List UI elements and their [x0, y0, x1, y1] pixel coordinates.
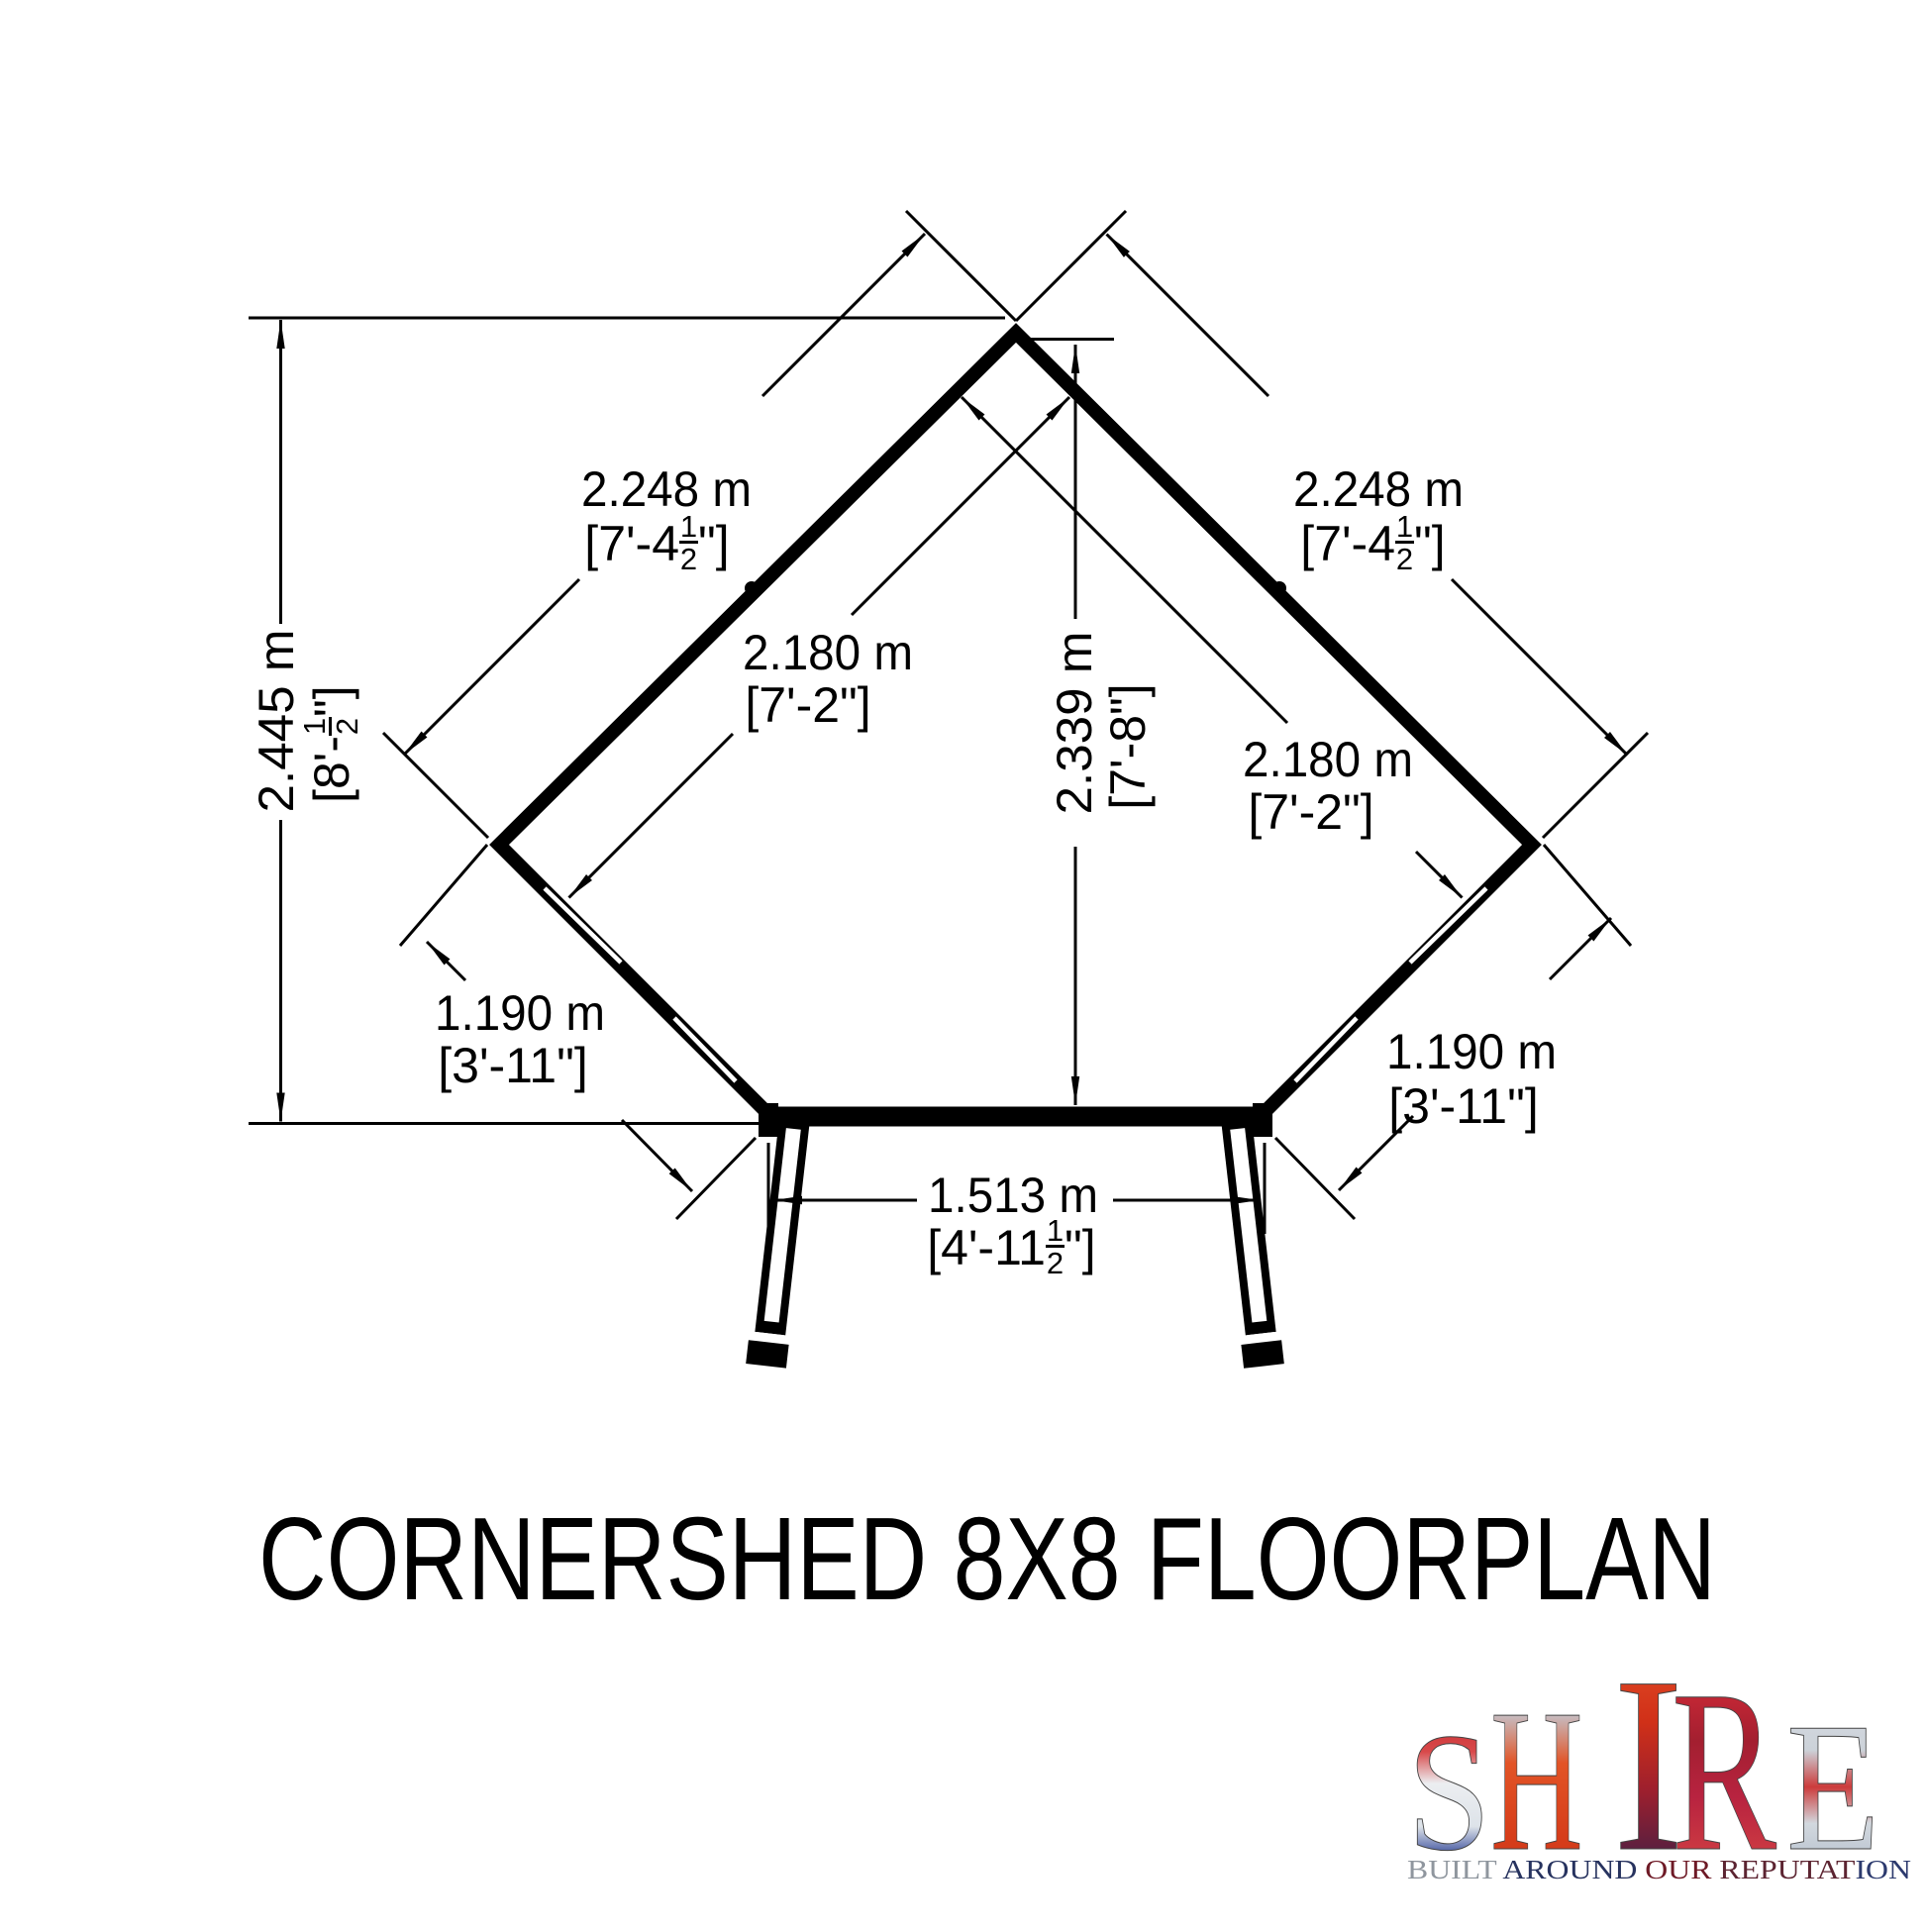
svg-text:2.339 m: 2.339 m — [1047, 632, 1102, 815]
svg-text:2.248 m: 2.248 m — [1293, 461, 1464, 517]
svg-text:1.190 m: 1.190 m — [1386, 1024, 1557, 1079]
svg-text:[3'-11"]: [3'-11"] — [1388, 1078, 1538, 1134]
svg-text:[3'-11"]: [3'-11"] — [438, 1038, 587, 1093]
svg-text:BUILT AROUND OUR REPUTATION: BUILT AROUND OUR REPUTATION — [1407, 1854, 1911, 1884]
svg-text:2: 2 — [680, 542, 697, 576]
svg-text:2.180 m: 2.180 m — [1243, 732, 1413, 787]
svg-text:[7'-2"]: [7'-2"] — [745, 677, 870, 733]
svg-text:2.248 m: 2.248 m — [581, 461, 752, 517]
svg-text:2.180 m: 2.180 m — [743, 625, 913, 680]
svg-text:1.513 m: 1.513 m — [928, 1168, 1098, 1223]
svg-text:"]: "] — [1414, 516, 1446, 571]
svg-text:1.190 m: 1.190 m — [435, 985, 605, 1041]
svg-text:1: 1 — [1396, 509, 1413, 544]
svg-text:"]: "] — [698, 516, 730, 571]
svg-text:[8'-: [8'- — [304, 736, 359, 803]
svg-text:"]: "] — [304, 685, 359, 717]
svg-text:2.445 m: 2.445 m — [249, 630, 304, 813]
svg-text:2: 2 — [1396, 542, 1413, 576]
svg-text:1: 1 — [680, 509, 697, 544]
svg-text:[7'-2"]: [7'-2"] — [1248, 784, 1373, 840]
svg-text:1: 1 — [297, 718, 332, 735]
svg-text:[7'-4: [7'-4 — [584, 516, 679, 571]
svg-text:[7'-8"]: [7'-8"] — [1100, 683, 1156, 809]
svg-text:2: 2 — [1047, 1246, 1064, 1280]
svg-text:2: 2 — [330, 718, 364, 735]
svg-text:[4'-11: [4'-11 — [927, 1220, 1046, 1275]
svg-text:1: 1 — [1047, 1213, 1064, 1248]
svg-text:CORNERSHED 8X8 FLOORPLAN: CORNERSHED 8X8 FLOORPLAN — [258, 1493, 1716, 1625]
svg-text:[7'-4: [7'-4 — [1300, 516, 1395, 571]
svg-text:"]: "] — [1065, 1220, 1096, 1275]
